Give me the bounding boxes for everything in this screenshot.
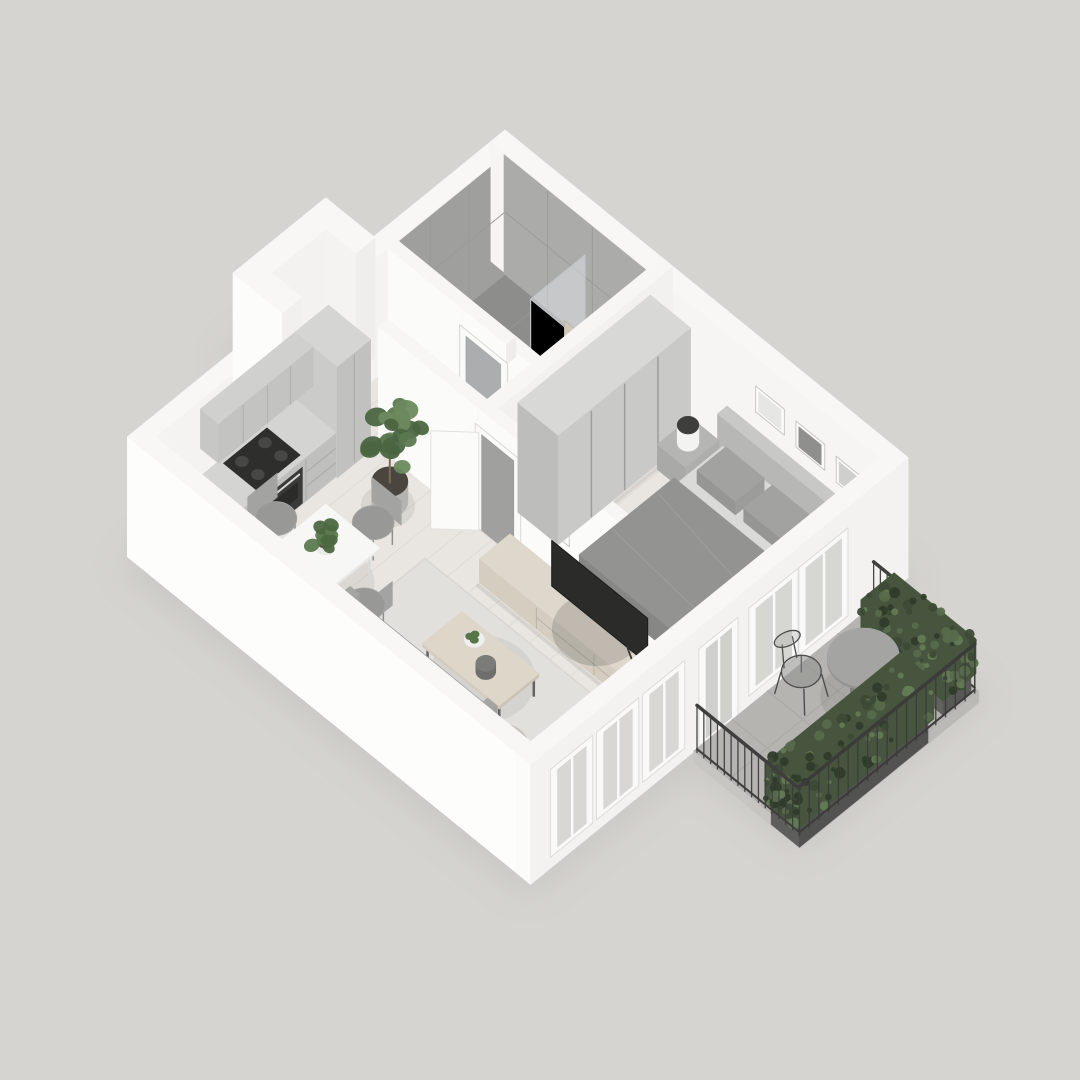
- isometric-scene: [0, 0, 1080, 1080]
- apartment-3d-floorplan-render: [0, 0, 1080, 1080]
- nightstand-lamp: [677, 416, 699, 451]
- bedroom-door-leaf-open: [431, 431, 479, 531]
- coffee-table-vase: [476, 655, 496, 679]
